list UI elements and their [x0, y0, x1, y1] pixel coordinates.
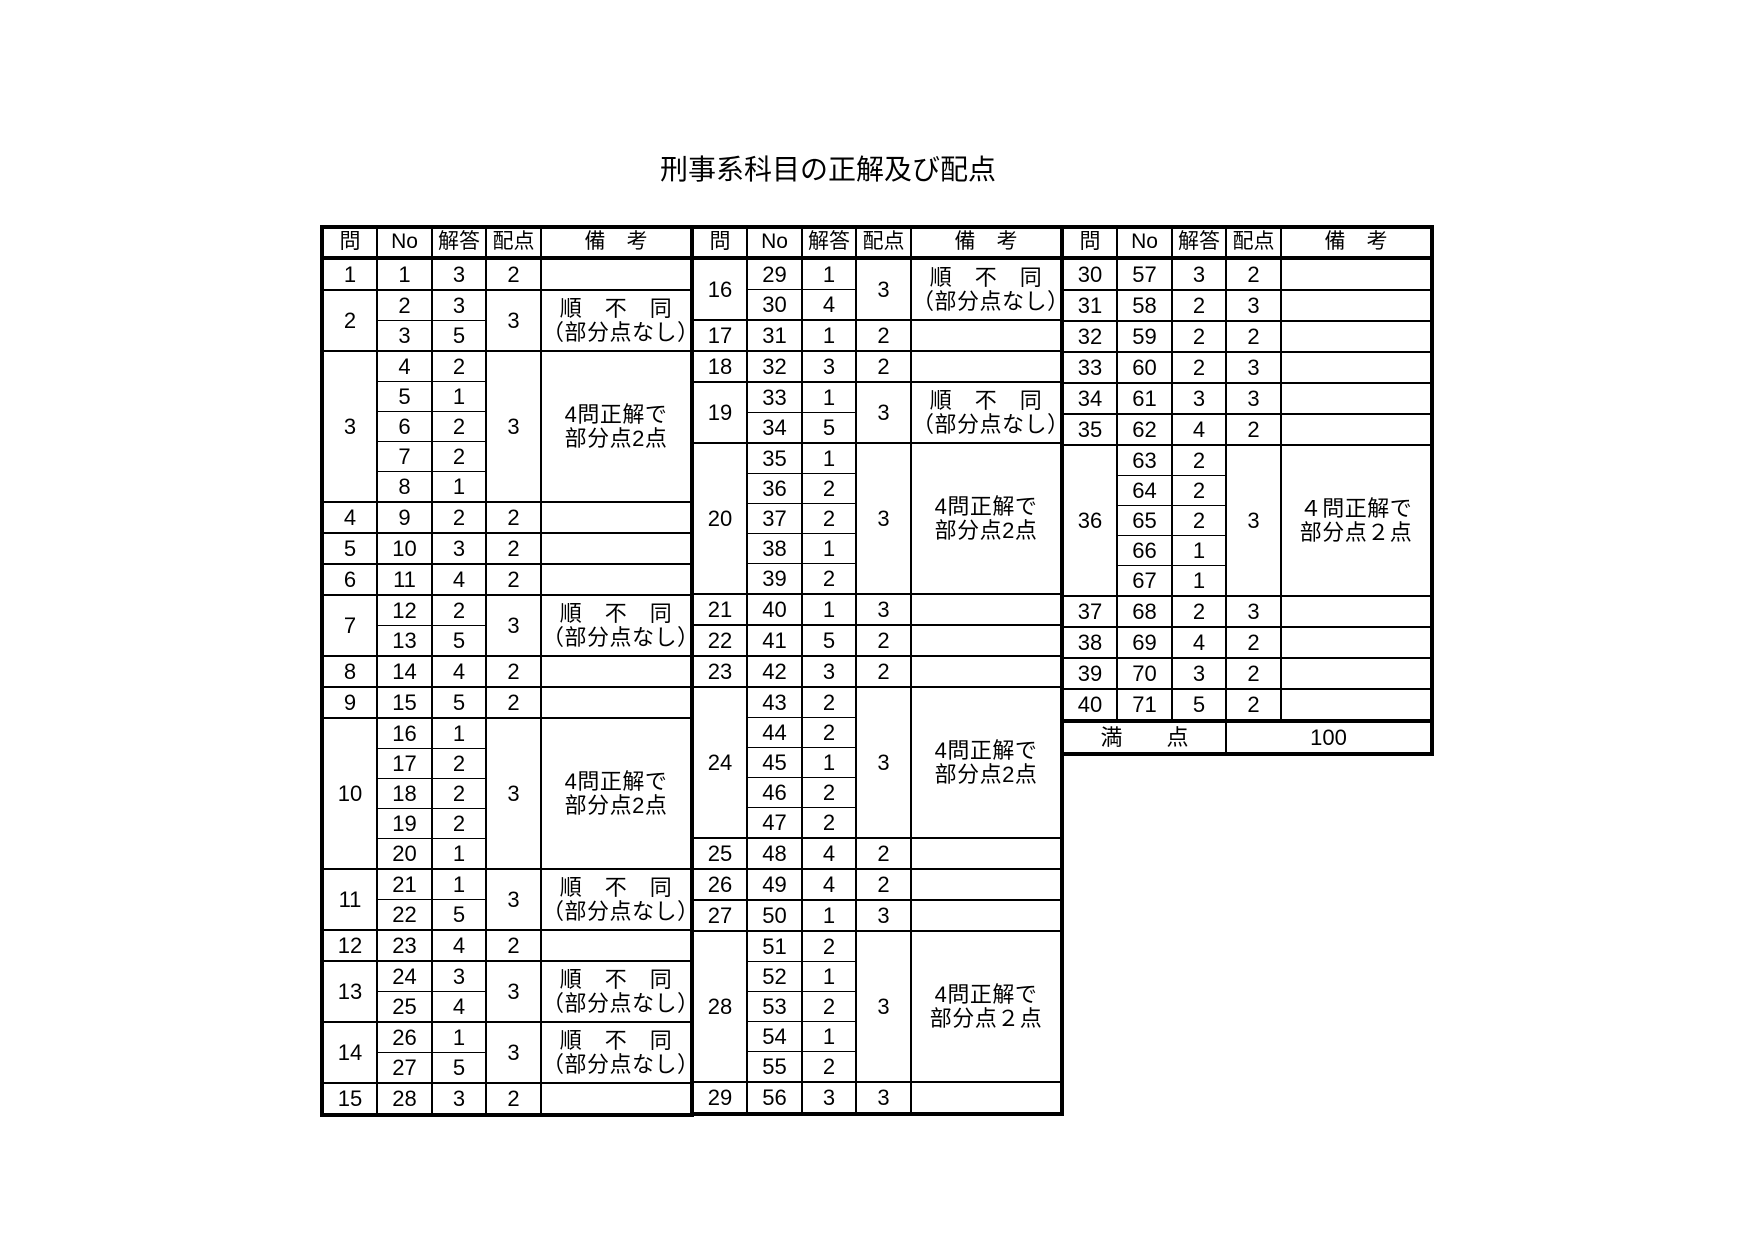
points-cell: 2: [486, 564, 541, 595]
no-cell: 58: [1117, 290, 1172, 321]
no-cell: 18: [377, 779, 432, 809]
remark-cell: [541, 930, 692, 961]
table-row: 315823: [1062, 290, 1432, 321]
points-cell: 2: [856, 351, 911, 382]
answer-cell: 1: [432, 382, 486, 412]
no-cell: 48: [747, 838, 802, 869]
answer-cell: 2: [802, 474, 856, 504]
table-row: 51032: [322, 533, 692, 564]
remark-cell: [1281, 596, 1432, 627]
table-row: 336023: [1062, 352, 1432, 383]
no-cell: 2: [377, 290, 432, 321]
q-cell: 28: [692, 931, 747, 1082]
table-row: 142613順 不 同 （部分点なし）: [322, 1022, 692, 1053]
answer-cell: 1: [432, 1022, 486, 1053]
header-remark: 備 考: [541, 227, 692, 258]
points-cell: 3: [486, 290, 541, 351]
q-cell: 4: [322, 502, 377, 533]
answer-cell: 5: [802, 625, 856, 656]
answer-cell: 2: [802, 1052, 856, 1083]
answer-cell: 3: [802, 656, 856, 687]
table-row: 112113順 不 同 （部分点なし）: [322, 869, 692, 900]
answer-cell: 4: [802, 869, 856, 900]
answer-cell: 2: [1172, 321, 1226, 352]
answer-cell: 1: [802, 594, 856, 625]
no-cell: 29: [747, 258, 802, 290]
points-cell: 3: [856, 931, 911, 1082]
answer-cell: 1: [802, 900, 856, 931]
no-cell: 52: [747, 962, 802, 992]
points-cell: 2: [856, 656, 911, 687]
header-no: No: [747, 227, 802, 258]
remark-cell: [911, 656, 1062, 687]
remark-cell: 順 不 同 （部分点なし）: [911, 258, 1062, 320]
header-answer: 解答: [432, 227, 486, 258]
no-cell: 37: [747, 504, 802, 534]
remark-cell: 順 不 同 （部分点なし）: [541, 595, 692, 656]
remark-cell: [911, 594, 1062, 625]
header-q: 問: [1062, 227, 1117, 258]
answer-cell: 3: [432, 961, 486, 992]
no-cell: 60: [1117, 352, 1172, 383]
no-cell: 54: [747, 1022, 802, 1052]
points-cell: 2: [1226, 627, 1281, 658]
header-q: 問: [692, 227, 747, 258]
answer-cell: 2: [802, 931, 856, 962]
answer-cell: 3: [802, 351, 856, 382]
answer-cell: 1: [802, 748, 856, 778]
q-cell: 5: [322, 533, 377, 564]
remark-cell: [911, 320, 1062, 351]
answer-cell: 1: [432, 839, 486, 870]
no-cell: 47: [747, 808, 802, 839]
table-row: 325922: [1062, 321, 1432, 352]
table-row: 81442: [322, 656, 692, 687]
table-row: 193313順 不 同 （部分点なし）: [692, 382, 1062, 413]
answer-cell: 2: [802, 808, 856, 839]
answer-cell: 1: [802, 534, 856, 564]
q-cell: 15: [322, 1083, 377, 1115]
no-cell: 30: [747, 290, 802, 321]
remark-cell: 順 不 同 （部分点なし）: [541, 961, 692, 1022]
q-cell: 32: [1062, 321, 1117, 352]
table-row: 2233順 不 同 （部分点なし）: [322, 290, 692, 321]
answer-cell: 2: [432, 351, 486, 382]
no-cell: 64: [1117, 476, 1172, 506]
answer-cell: 5: [1172, 689, 1226, 721]
answer-cell: 2: [802, 687, 856, 718]
no-cell: 68: [1117, 596, 1172, 627]
no-cell: 67: [1117, 566, 1172, 597]
no-cell: 27: [377, 1053, 432, 1084]
q-cell: 25: [692, 838, 747, 869]
answer-cell: 2: [432, 595, 486, 626]
no-cell: 63: [1117, 445, 1172, 476]
points-cell: 3: [1226, 290, 1281, 321]
points-cell: 2: [1226, 689, 1281, 721]
q-cell: 39: [1062, 658, 1117, 689]
no-cell: 32: [747, 351, 802, 382]
remark-cell: [541, 656, 692, 687]
answer-table-3: 問No解答配点備 考305732315823325922336023346133…: [1060, 225, 1434, 756]
q-cell: 19: [692, 382, 747, 443]
remark-cell: [1281, 689, 1432, 721]
answer-cell: 3: [1172, 658, 1226, 689]
q-cell: 11: [322, 869, 377, 930]
remark-cell: 順 不 同 （部分点なし）: [911, 382, 1062, 443]
remark-cell: [1281, 658, 1432, 689]
header-row: 問No解答配点備 考: [1062, 227, 1432, 258]
answer-cell: 3: [432, 258, 486, 290]
answer-cell: 2: [432, 412, 486, 442]
points-cell: 3: [856, 687, 911, 838]
answer-table-1: 問No解答配点備 考11322233順 不 同 （部分点なし）3534234問正…: [320, 225, 694, 1117]
no-cell: 1: [377, 258, 432, 290]
remark-cell: [541, 502, 692, 533]
remark-cell: [911, 869, 1062, 900]
answer-cell: 1: [802, 962, 856, 992]
answer-cell: 3: [802, 1082, 856, 1114]
table-row: 2851234問正解で 部分点２点: [692, 931, 1062, 962]
remark-cell: [911, 351, 1062, 382]
q-cell: 21: [692, 594, 747, 625]
points-cell: 3: [486, 869, 541, 930]
answer-cell: 1: [802, 1022, 856, 1052]
q-cell: 3: [322, 351, 377, 502]
no-cell: 23: [377, 930, 432, 961]
answer-cell: 2: [802, 504, 856, 534]
remark-cell: [1281, 258, 1432, 290]
remark-cell: ４問正解で 部分点２点: [1281, 445, 1432, 596]
table-row: 122342: [322, 930, 692, 961]
remark-cell: [911, 900, 1062, 931]
points-cell: 2: [486, 930, 541, 961]
q-cell: 34: [1062, 383, 1117, 414]
no-cell: 44: [747, 718, 802, 748]
table-row: 407152: [1062, 689, 1432, 721]
remark-cell: 順 不 同 （部分点なし）: [541, 290, 692, 351]
remark-cell: 4問正解で 部分点2点: [541, 718, 692, 869]
answer-cell: 1: [802, 258, 856, 290]
points-cell: 2: [1226, 658, 1281, 689]
points-cell: 3: [486, 595, 541, 656]
answer-cell: 1: [432, 472, 486, 503]
no-cell: 21: [377, 869, 432, 900]
header-no: No: [1117, 227, 1172, 258]
remark-cell: [1281, 627, 1432, 658]
table-row: 4922: [322, 502, 692, 533]
points-cell: 2: [856, 869, 911, 900]
q-cell: 12: [322, 930, 377, 961]
no-cell: 7: [377, 442, 432, 472]
table-row: 71223順 不 同 （部分点なし）: [322, 595, 692, 626]
q-cell: 31: [1062, 290, 1117, 321]
no-cell: 5: [377, 382, 432, 412]
table-row: 305732: [1062, 258, 1432, 290]
no-cell: 39: [747, 564, 802, 595]
answer-cell: 5: [432, 1053, 486, 1084]
q-cell: 13: [322, 961, 377, 1022]
no-cell: 25: [377, 992, 432, 1023]
remark-cell: 順 不 同 （部分点なし）: [541, 1022, 692, 1083]
points-cell: 3: [1226, 596, 1281, 627]
no-cell: 71: [1117, 689, 1172, 721]
header-points: 配点: [856, 227, 911, 258]
answer-cell: 2: [802, 778, 856, 808]
no-cell: 22: [377, 900, 432, 931]
answer-cell: 5: [432, 626, 486, 657]
answer-tables: 問No解答配点備 考11322233順 不 同 （部分点なし）3534234問正…: [320, 225, 1434, 1117]
table-row: 397032: [1062, 658, 1432, 689]
no-cell: 19: [377, 809, 432, 839]
answer-cell: 2: [1172, 596, 1226, 627]
answer-cell: 3: [432, 290, 486, 321]
header-points: 配点: [1226, 227, 1281, 258]
no-cell: 46: [747, 778, 802, 808]
points-cell: 2: [1226, 414, 1281, 445]
points-cell: 3: [486, 1022, 541, 1083]
q-cell: 38: [1062, 627, 1117, 658]
answer-cell: 2: [432, 749, 486, 779]
remark-cell: 4問正解で 部分点２点: [911, 931, 1062, 1082]
answer-cell: 4: [802, 290, 856, 321]
no-cell: 59: [1117, 321, 1172, 352]
points-cell: 3: [1226, 352, 1281, 383]
points-cell: 2: [486, 687, 541, 718]
no-cell: 70: [1117, 658, 1172, 689]
answer-cell: 1: [432, 718, 486, 749]
table-row: 34234問正解で 部分点2点: [322, 351, 692, 382]
no-cell: 51: [747, 931, 802, 962]
remark-cell: [911, 625, 1062, 656]
points-cell: 3: [1226, 383, 1281, 414]
no-cell: 50: [747, 900, 802, 931]
q-cell: 7: [322, 595, 377, 656]
points-cell: 2: [1226, 258, 1281, 290]
answer-cell: 2: [802, 718, 856, 748]
no-cell: 26: [377, 1022, 432, 1053]
points-cell: 3: [1226, 445, 1281, 596]
header-row: 問No解答配点備 考: [692, 227, 1062, 258]
answer-cell: 4: [802, 838, 856, 869]
table-row: 214013: [692, 594, 1062, 625]
no-cell: 20: [377, 839, 432, 870]
points-cell: 3: [856, 258, 911, 320]
points-cell: 3: [856, 594, 911, 625]
table-row: 366323４問正解で 部分点２点: [1062, 445, 1432, 476]
no-cell: 4: [377, 351, 432, 382]
answer-cell: 2: [802, 564, 856, 595]
header-q: 問: [322, 227, 377, 258]
answer-cell: 4: [432, 564, 486, 595]
points-cell: 2: [856, 625, 911, 656]
answer-cell: 4: [432, 930, 486, 961]
q-cell: 27: [692, 900, 747, 931]
q-cell: 10: [322, 718, 377, 869]
table-row: 162913順 不 同 （部分点なし）: [692, 258, 1062, 290]
no-cell: 41: [747, 625, 802, 656]
remark-cell: 4問正解で 部分点2点: [911, 687, 1062, 838]
answer-cell: 1: [432, 869, 486, 900]
table-row: 295633: [692, 1082, 1062, 1114]
header-no: No: [377, 227, 432, 258]
q-cell: 6: [322, 564, 377, 595]
table-row: 173112: [692, 320, 1062, 351]
q-cell: 23: [692, 656, 747, 687]
table-row: 132433順 不 同 （部分点なし）: [322, 961, 692, 992]
table-row: 61142: [322, 564, 692, 595]
table-row: 264942: [692, 869, 1062, 900]
header-points: 配点: [486, 227, 541, 258]
no-cell: 33: [747, 382, 802, 413]
points-cell: 2: [1226, 321, 1281, 352]
points-cell: 2: [856, 838, 911, 869]
table-row: 234232: [692, 656, 1062, 687]
points-cell: 3: [856, 382, 911, 443]
answer-cell: 5: [432, 687, 486, 718]
answer-cell: 3: [432, 533, 486, 564]
points-cell: 2: [486, 502, 541, 533]
q-cell: 20: [692, 443, 747, 594]
points-cell: 3: [486, 718, 541, 869]
no-cell: 24: [377, 961, 432, 992]
answer-cell: 1: [802, 320, 856, 351]
q-cell: 29: [692, 1082, 747, 1114]
remark-cell: [541, 564, 692, 595]
answer-table-2: 問No解答配点備 考162913順 不 同 （部分点なし）30417311218…: [690, 225, 1064, 1116]
no-cell: 14: [377, 656, 432, 687]
remark-cell: [911, 1082, 1062, 1114]
remark-cell: 4問正解で 部分点2点: [541, 351, 692, 502]
no-cell: 17: [377, 749, 432, 779]
points-cell: 2: [486, 1083, 541, 1115]
points-cell: 3: [856, 443, 911, 594]
no-cell: 12: [377, 595, 432, 626]
header-answer: 解答: [1172, 227, 1226, 258]
no-cell: 55: [747, 1052, 802, 1083]
no-cell: 35: [747, 443, 802, 474]
answer-cell: 1: [802, 443, 856, 474]
answer-cell: 5: [432, 900, 486, 931]
q-cell: 40: [1062, 689, 1117, 721]
no-cell: 62: [1117, 414, 1172, 445]
remark-cell: [1281, 383, 1432, 414]
header-answer: 解答: [802, 227, 856, 258]
points-cell: 2: [486, 656, 541, 687]
points-cell: 3: [486, 351, 541, 502]
q-cell: 16: [692, 258, 747, 320]
table-row: 183232: [692, 351, 1062, 382]
table-row: 386942: [1062, 627, 1432, 658]
answer-cell: 3: [1172, 258, 1226, 290]
no-cell: 3: [377, 321, 432, 352]
answer-cell: 4: [1172, 627, 1226, 658]
no-cell: 40: [747, 594, 802, 625]
header-remark: 備 考: [911, 227, 1062, 258]
table-row: 91552: [322, 687, 692, 718]
remark-cell: 4問正解で 部分点2点: [911, 443, 1062, 594]
answer-cell: 2: [1172, 506, 1226, 536]
answer-cell: 2: [1172, 476, 1226, 506]
header-row: 問No解答配点備 考: [322, 227, 692, 258]
no-cell: 66: [1117, 536, 1172, 566]
no-cell: 42: [747, 656, 802, 687]
no-cell: 57: [1117, 258, 1172, 290]
answer-cell: 1: [802, 382, 856, 413]
q-cell: 35: [1062, 414, 1117, 445]
table-row: 2035134問正解で 部分点2点: [692, 443, 1062, 474]
q-cell: 22: [692, 625, 747, 656]
remark-cell: [911, 838, 1062, 869]
table-row: 1016134問正解で 部分点2点: [322, 718, 692, 749]
no-cell: 15: [377, 687, 432, 718]
table-row: 1132: [322, 258, 692, 290]
no-cell: 36: [747, 474, 802, 504]
no-cell: 10: [377, 533, 432, 564]
answer-cell: 2: [1172, 445, 1226, 476]
remark-cell: 順 不 同 （部分点なし）: [541, 869, 692, 930]
remark-cell: [541, 1083, 692, 1115]
answer-cell: 4: [432, 656, 486, 687]
no-cell: 49: [747, 869, 802, 900]
no-cell: 11: [377, 564, 432, 595]
remark-cell: [1281, 290, 1432, 321]
remark-cell: [541, 258, 692, 290]
table-row: 275013: [692, 900, 1062, 931]
table-row: 224152: [692, 625, 1062, 656]
max-score-row: 満 点100: [1062, 721, 1432, 754]
q-cell: 30: [1062, 258, 1117, 290]
table-row: 346133: [1062, 383, 1432, 414]
answer-cell: 2: [1172, 352, 1226, 383]
q-cell: 33: [1062, 352, 1117, 383]
points-cell: 3: [856, 1082, 911, 1114]
no-cell: 31: [747, 320, 802, 351]
answer-cell: 2: [802, 992, 856, 1022]
q-cell: 36: [1062, 445, 1117, 596]
points-cell: 3: [486, 961, 541, 1022]
no-cell: 38: [747, 534, 802, 564]
q-cell: 8: [322, 656, 377, 687]
no-cell: 8: [377, 472, 432, 503]
answer-cell: 4: [1172, 414, 1226, 445]
q-cell: 9: [322, 687, 377, 718]
answer-cell: 2: [432, 442, 486, 472]
remark-cell: [541, 533, 692, 564]
answer-cell: 4: [432, 992, 486, 1023]
q-cell: 14: [322, 1022, 377, 1083]
no-cell: 28: [377, 1083, 432, 1115]
no-cell: 65: [1117, 506, 1172, 536]
points-cell: 3: [856, 900, 911, 931]
max-score-value: 100: [1226, 721, 1432, 754]
header-remark: 備 考: [1281, 227, 1432, 258]
table-row: 376823: [1062, 596, 1432, 627]
no-cell: 53: [747, 992, 802, 1022]
table-row: 152832: [322, 1083, 692, 1115]
no-cell: 45: [747, 748, 802, 778]
no-cell: 56: [747, 1082, 802, 1114]
answer-cell: 5: [432, 321, 486, 352]
max-score-label: 満 点: [1062, 721, 1226, 754]
points-cell: 2: [486, 258, 541, 290]
no-cell: 69: [1117, 627, 1172, 658]
no-cell: 43: [747, 687, 802, 718]
table-row: 2443234問正解で 部分点2点: [692, 687, 1062, 718]
q-cell: 1: [322, 258, 377, 290]
q-cell: 24: [692, 687, 747, 838]
page-title: 刑事系科目の正解及び配点: [660, 148, 996, 188]
